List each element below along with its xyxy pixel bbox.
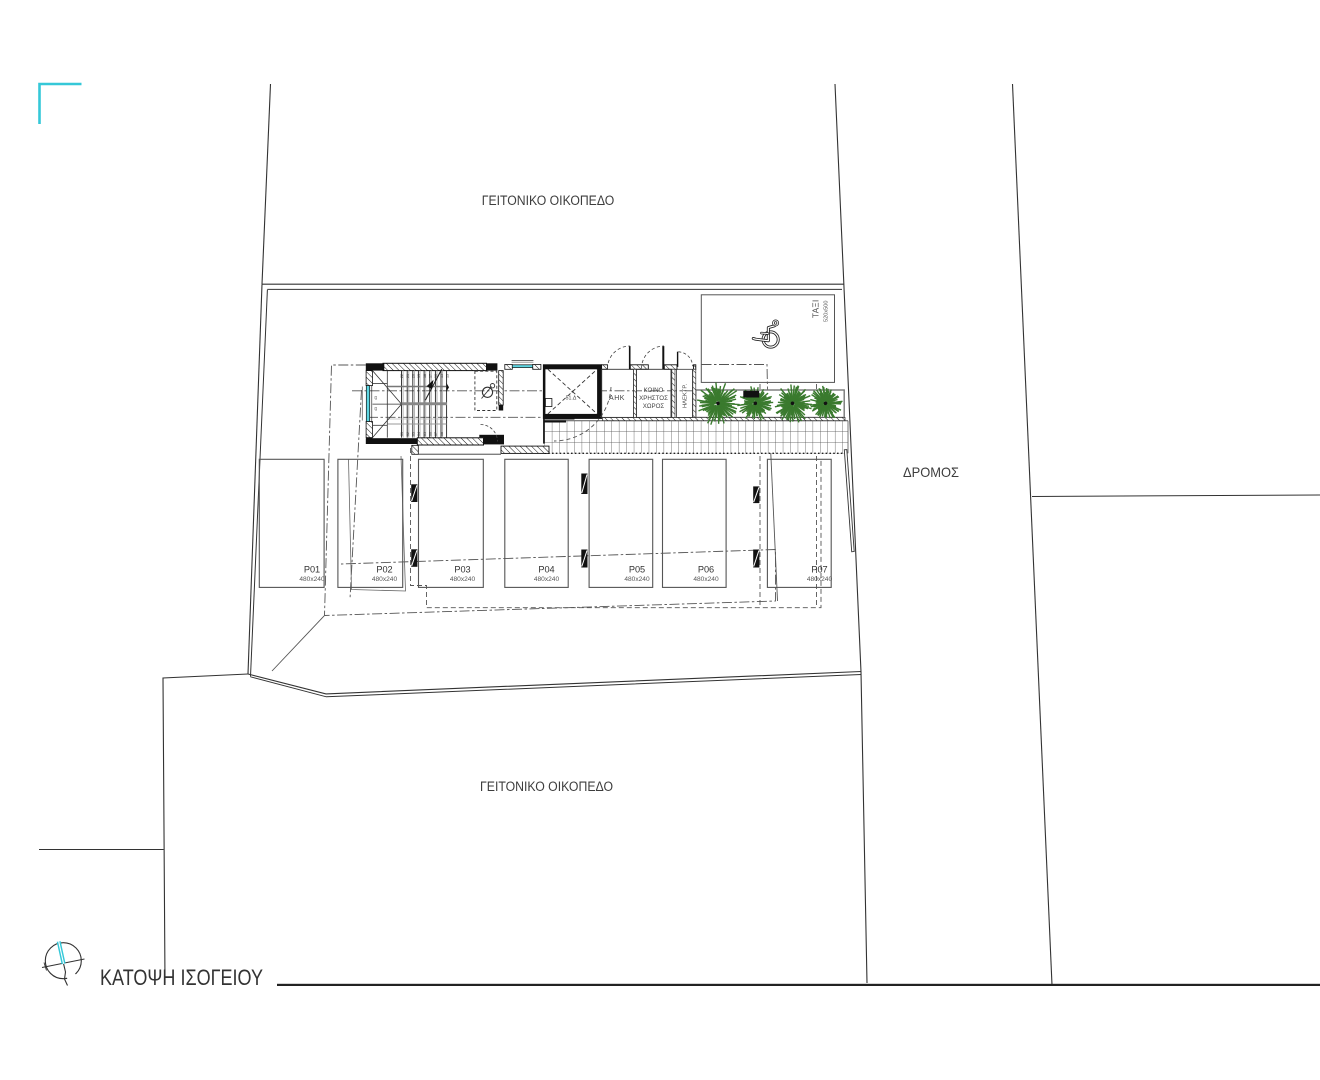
svg-text:480x240: 480x240 (693, 576, 719, 583)
svg-text:480x240: 480x240 (299, 576, 325, 583)
svg-text:43: 43 (374, 407, 378, 411)
svg-text:ΗΛΕΚΤΡ.: ΗΛΕΚΤΡ. (683, 384, 689, 408)
svg-text:ΔΡΟΜΟΣ: ΔΡΟΜΟΣ (903, 465, 959, 480)
svg-text:20: 20 (412, 374, 416, 378)
svg-text:06: 06 (428, 432, 432, 436)
svg-text:480x240: 480x240 (807, 576, 833, 583)
svg-text:07: 07 (434, 432, 438, 436)
svg-text:13: 13 (445, 374, 449, 378)
svg-text:15: 15 (440, 374, 444, 378)
svg-text:ΧΩΡΟΣ: ΧΩΡΟΣ (643, 403, 665, 410)
svg-text:ΚΟΙΝΟ: ΚΟΙΝΟ (644, 387, 664, 394)
svg-text:21: 21 (406, 374, 410, 378)
svg-text:04: 04 (417, 432, 421, 436)
svg-text:480x240: 480x240 (372, 576, 398, 583)
svg-text:ΤΑΞΙ: ΤΑΞΙ (812, 299, 821, 318)
svg-text:51.Δ: 51.Δ (566, 396, 577, 402)
svg-text:480x240: 480x240 (450, 576, 476, 583)
svg-text:22: 22 (400, 374, 404, 378)
svg-text:P01: P01 (304, 565, 320, 575)
svg-text:P02: P02 (376, 565, 392, 575)
svg-text:P04: P04 (538, 565, 554, 575)
svg-text:08: 08 (440, 432, 444, 436)
svg-text:480x240: 480x240 (534, 576, 560, 583)
svg-text:43: 43 (374, 396, 378, 400)
svg-text:ΓΕΙΤΟΝΙΚΟ ΟΙΚΟΠΕΔΟ: ΓΕΙΤΟΝΙΚΟ ΟΙΚΟΠΕΔΟ (482, 193, 615, 208)
svg-text:01: 01 (400, 432, 404, 436)
svg-text:P03: P03 (454, 565, 470, 575)
svg-text:19: 19 (417, 374, 421, 378)
svg-text:ΓΕΙΤΟΝΙΚΟ ΟΙΚΟΠΕΔΟ: ΓΕΙΤΟΝΙΚΟ ΟΙΚΟΠΕΔΟ (480, 779, 613, 794)
svg-text:16: 16 (434, 374, 438, 378)
svg-text:ΧΡΗΣΤΟΣ: ΧΡΗΣΤΟΣ (639, 395, 668, 402)
svg-text:05: 05 (423, 432, 427, 436)
svg-text:17: 17 (428, 374, 432, 378)
svg-text:18: 18 (423, 374, 427, 378)
svg-text:520x500: 520x500 (824, 301, 830, 322)
svg-text:02: 02 (406, 432, 410, 436)
svg-text:ΚΑΤΟΨΗ ΙΣΟΓΕΙΟΥ: ΚΑΤΟΨΗ ΙΣΟΓΕΙΟΥ (100, 965, 263, 990)
svg-text:P05: P05 (629, 565, 645, 575)
svg-text:P06: P06 (698, 565, 714, 575)
svg-text:P07: P07 (811, 565, 827, 575)
svg-text:AHK: AHK (609, 395, 625, 402)
svg-text:03: 03 (412, 432, 416, 436)
svg-text:480x240: 480x240 (624, 576, 650, 583)
